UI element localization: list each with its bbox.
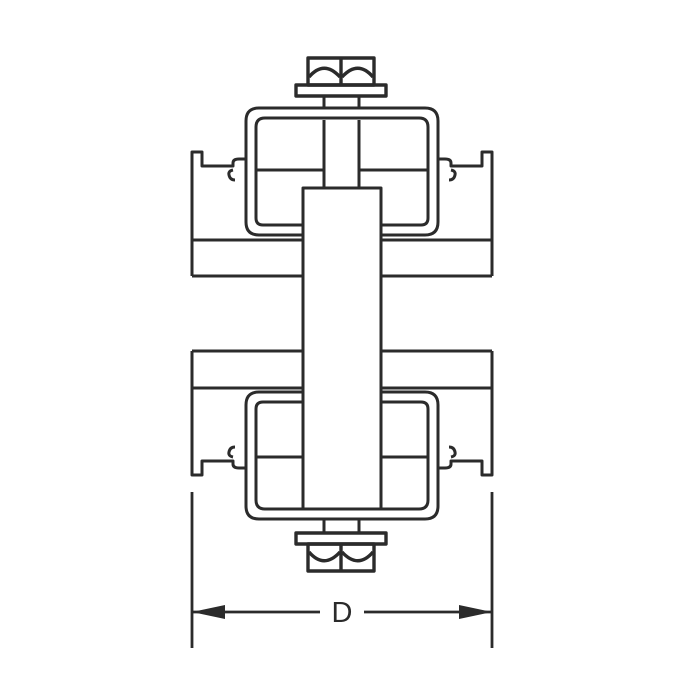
top-bolt-chamfer-right [342,68,373,77]
lower-strut-channel [192,351,492,475]
upper-channel-left-lip-nose [229,170,235,180]
lower-channel-right-lip-nose [449,447,455,457]
bottom-bolt-chamfer-left [309,552,340,561]
spacer-block [303,188,381,509]
top-washer [296,85,386,96]
upper-channel-right-lip-nose [449,170,455,180]
bottom-bolt-shank [324,519,359,533]
bottom-hex-bolt [296,519,386,571]
upper-channel-left-profile [192,152,246,276]
lower-channel-left-profile [192,351,246,475]
arrowhead-right-icon [459,605,492,619]
clamp-assembly-diagram: D [0,0,700,700]
upper-channel-right-profile [438,152,492,276]
spacer-block-outline [303,188,381,509]
top-bolt-chamfer-left [309,68,340,77]
top-bolt-shank [324,96,359,188]
drawing-canvas: D [0,0,700,700]
bottom-bolt-chamfer-right [342,552,373,561]
lower-channel-right-profile [438,351,492,475]
dimension-label: D [332,597,353,629]
lower-channel-left-lip-nose [229,447,235,457]
arrowhead-left-icon [192,605,225,619]
upper-strut-channel [192,152,492,276]
